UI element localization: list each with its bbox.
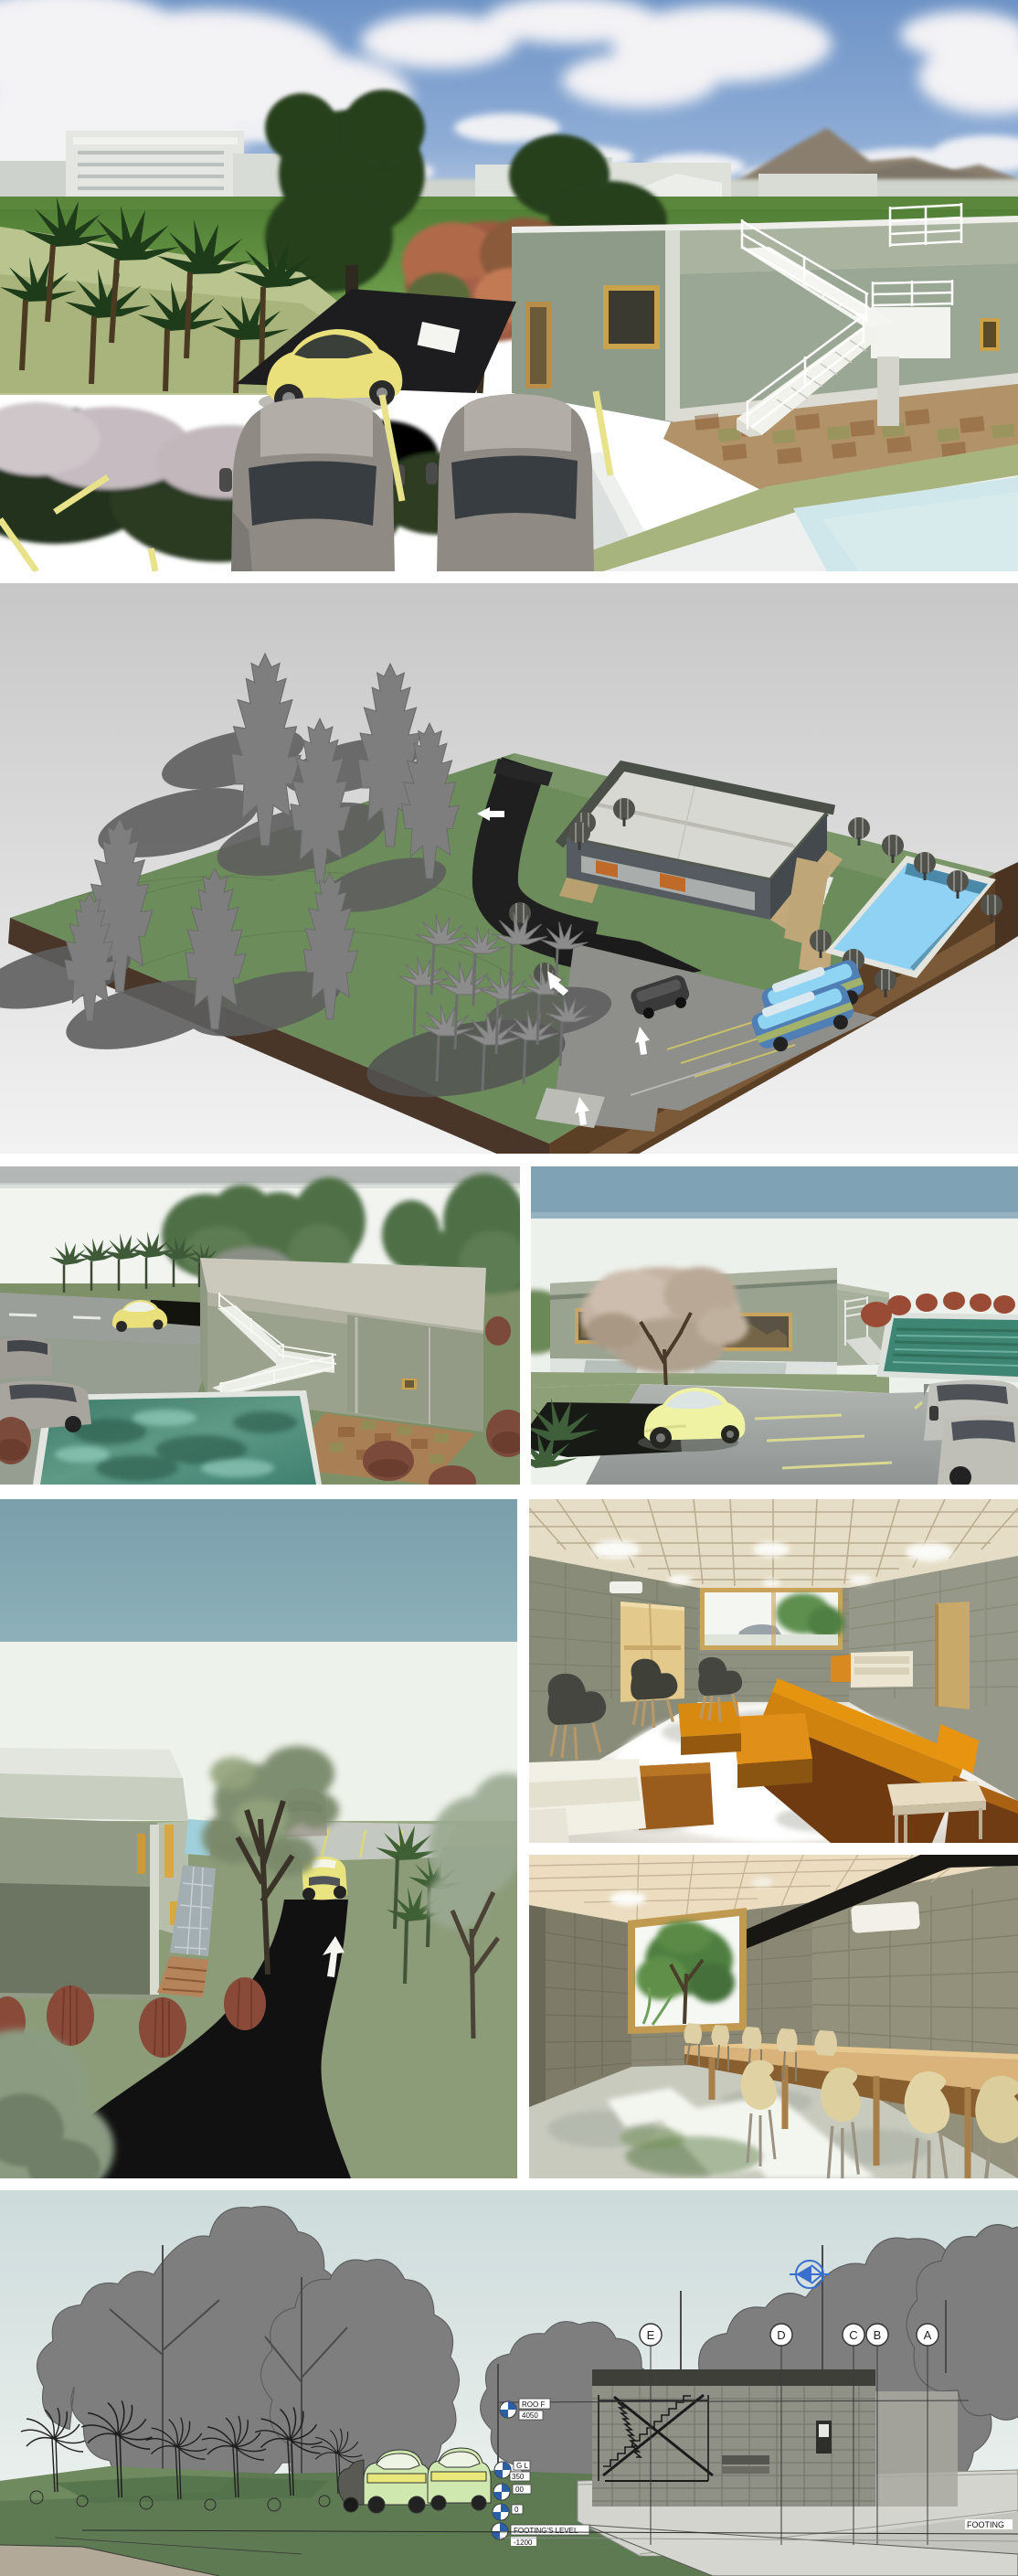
svg-text:D: D: [777, 2328, 785, 2342]
svg-text:FOOTING'S LEVEL: FOOTING'S LEVEL: [514, 2527, 578, 2535]
svg-text:B: B: [874, 2328, 882, 2342]
svg-text:ROO F: ROO F: [522, 2400, 545, 2409]
svg-text:G L: G L: [516, 2462, 528, 2470]
svg-text:0: 0: [514, 2506, 519, 2514]
svg-text:350: 350: [512, 2473, 525, 2481]
svg-text:4050: 4050: [522, 2411, 538, 2420]
svg-text:A: A: [924, 2328, 932, 2342]
svg-text:FOOTING: FOOTING: [967, 2520, 1004, 2529]
svg-text:C: C: [849, 2328, 857, 2342]
svg-text:-1200: -1200: [514, 2539, 533, 2547]
svg-text:E: E: [647, 2328, 655, 2342]
svg-text:00: 00: [515, 2486, 524, 2494]
